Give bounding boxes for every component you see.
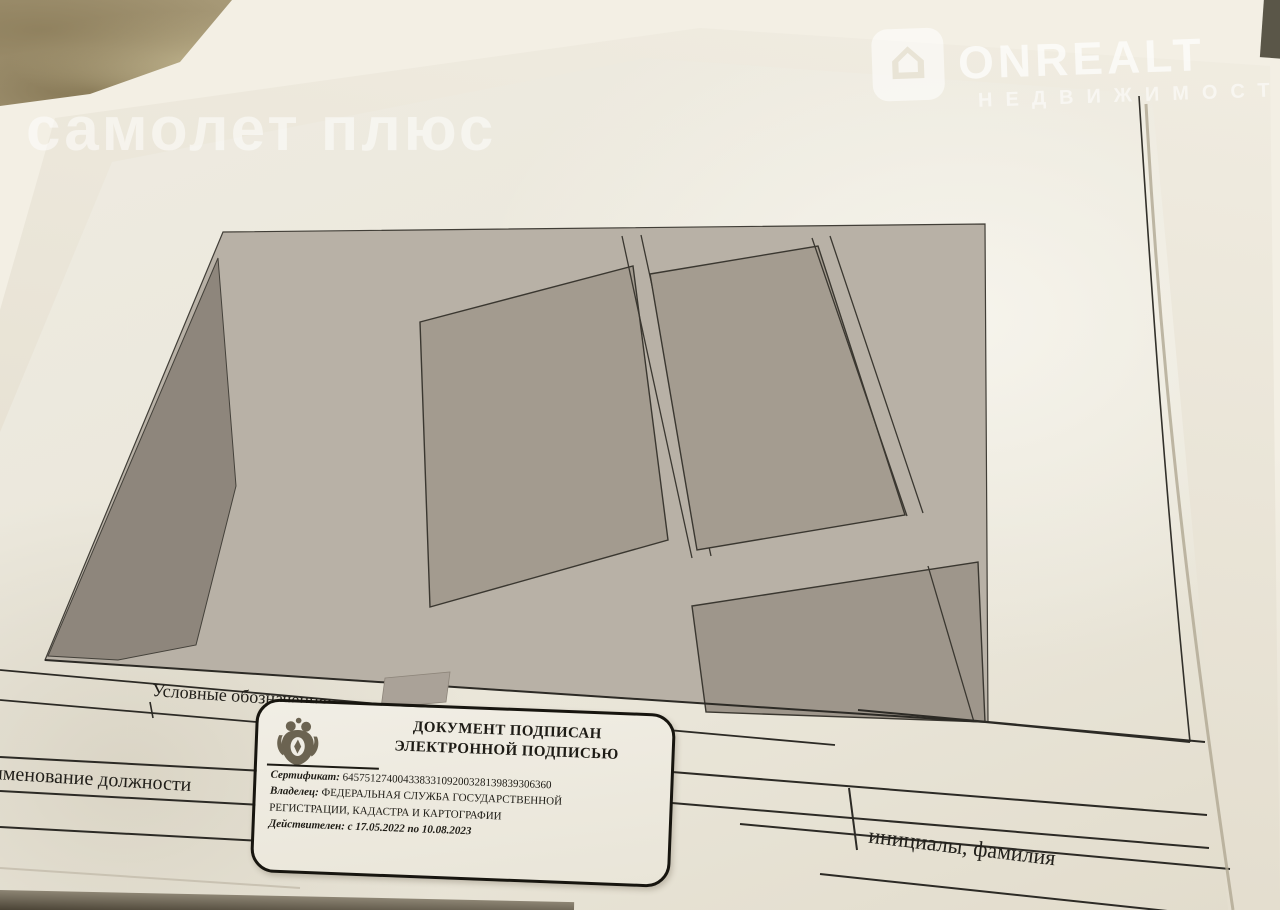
- samolet-plus-watermark: самолет плюс: [26, 94, 496, 165]
- legend-row-tick: [150, 702, 153, 718]
- onrealt-logo-text: ONREALT: [957, 27, 1206, 90]
- signature-line: [672, 772, 1207, 815]
- signature-line: [820, 874, 1252, 910]
- parcel-left-dark: [48, 258, 236, 660]
- page-edge: [1146, 104, 1233, 910]
- table-right-border: [1139, 96, 1190, 742]
- electronic-signature-stamp: ДОКУМЕНТ ПОДПИСАН ЭЛЕКТРОННОЙ ПОДПИСЬЮ С…: [250, 698, 676, 888]
- onrealt-house-icon: ⌂: [871, 27, 945, 101]
- coat-of-arms-icon: [273, 714, 323, 768]
- under-sheet-edge: [0, 868, 300, 888]
- photo-of-document: платно 2022 г. инистрации дарственной па…: [0, 0, 1280, 910]
- signature-line: [858, 710, 1205, 742]
